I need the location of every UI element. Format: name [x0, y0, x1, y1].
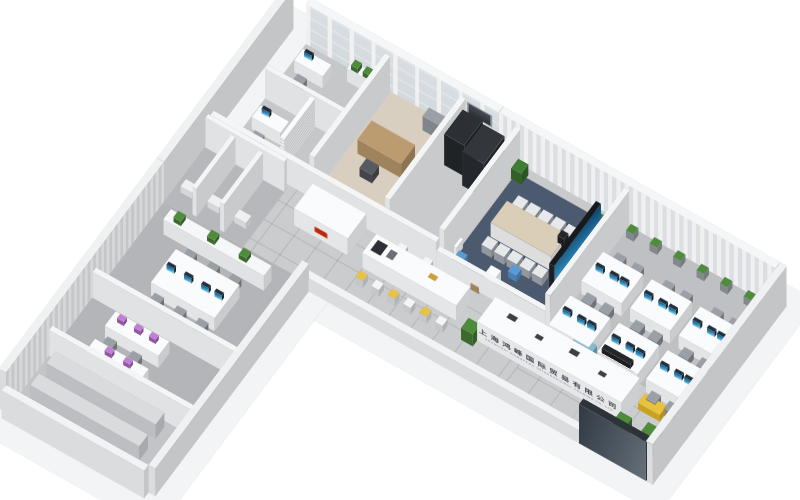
- bar-counter-detail: [370, 240, 388, 256]
- wall-east-left-wing-south: [149, 465, 156, 496]
- reception-desk-detail: [314, 226, 327, 239]
- front-desk-sign-detail: [569, 348, 581, 357]
- front-desk-sign-detail: [534, 334, 543, 341]
- front-desk-sign-detail: [506, 313, 518, 322]
- wall-south-left-wing-east: [144, 465, 148, 498]
- wall-east-exterior-south: [646, 441, 653, 485]
- office-floorplan-render: 上海鸿峰国际贸易有限公司SHANGHAI HONGFENG INTERNATIO…: [0, 0, 800, 500]
- front-desk-sign-detail: [598, 370, 607, 377]
- bar-counter-detail: [428, 273, 439, 282]
- bar-counter-detail: [386, 249, 398, 260]
- wall-restrooms-east: [284, 158, 287, 192]
